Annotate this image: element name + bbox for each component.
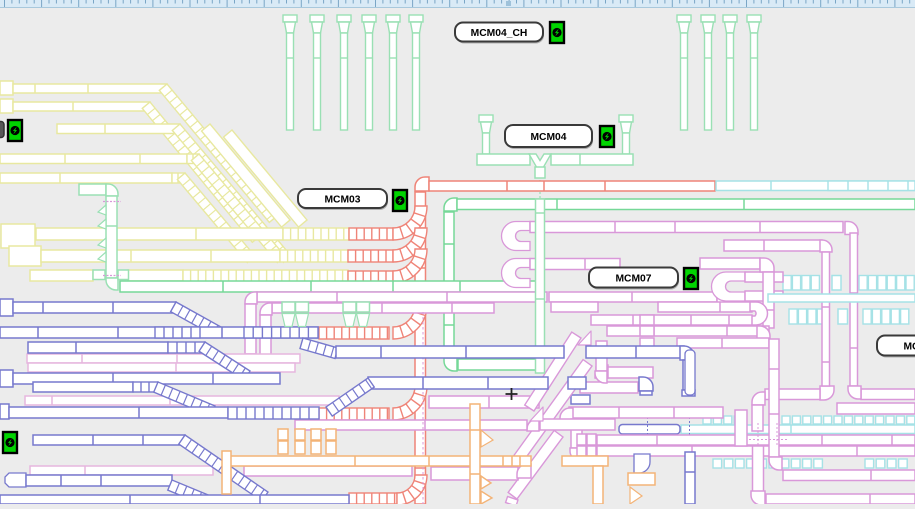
svg-text:MCM07: MCM07 bbox=[615, 274, 651, 285]
svg-text:MCM03: MCM03 bbox=[324, 195, 360, 206]
svg-text:MCM04_CH: MCM04_CH bbox=[471, 28, 528, 39]
svg-text:MCM04: MCM04 bbox=[530, 132, 566, 143]
svg-text:MCM08: MCM08 bbox=[903, 342, 915, 353]
